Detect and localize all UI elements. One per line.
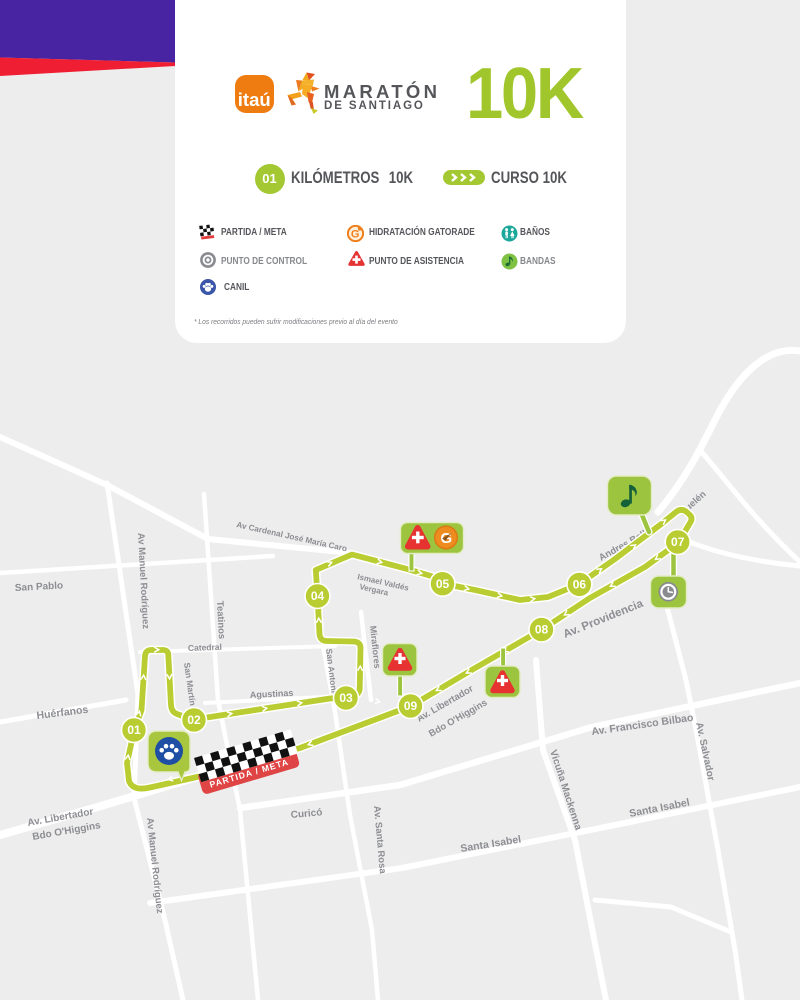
svg-text:07: 07 [671,535,685,549]
svg-text:03: 03 [339,691,353,705]
svg-text:08: 08 [535,623,549,637]
svg-text:Catedral: Catedral [188,642,222,653]
svg-text:San Martín: San Martín [182,662,198,706]
svg-text:Miraflores: Miraflores [368,625,382,669]
svg-text:Av Manuel Rodríguez: Av Manuel Rodríguez [135,533,151,630]
svg-text:01: 01 [127,723,141,737]
svg-text:San Pablo: San Pablo [15,580,64,594]
svg-text:05: 05 [436,577,450,591]
svg-text:Teatinos: Teatinos [214,601,227,640]
svg-text:04: 04 [311,589,325,603]
svg-text:Av. Santa Rosa: Av. Santa Rosa [371,805,388,875]
svg-text:Av Manuel Rodríguez: Av Manuel Rodríguez [144,817,165,914]
svg-text:Av. Salvador: Av. Salvador [693,721,716,782]
svg-text:09: 09 [404,699,418,713]
svg-text:Curicó: Curicó [290,807,323,821]
svg-text:02: 02 [187,713,201,727]
svg-text:Huérfanos: Huérfanos [36,704,89,722]
svg-text:06: 06 [573,578,587,592]
